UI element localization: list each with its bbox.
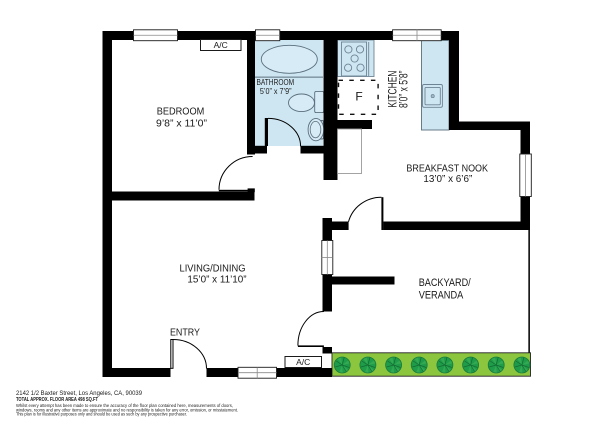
svg-text:A/C: A/C <box>296 357 310 367</box>
svg-text:LIVING/DINING: LIVING/DINING <box>180 264 246 275</box>
svg-text:15’0” x 11’10”: 15’0” x 11’10” <box>187 275 247 286</box>
svg-text:BACKYARD/: BACKYARD/ <box>419 277 472 289</box>
svg-text:VERANDA: VERANDA <box>419 290 464 302</box>
svg-text:BEDROOM: BEDROOM <box>157 106 205 118</box>
svg-text:5’0” x 7’9”: 5’0” x 7’9” <box>260 87 292 96</box>
svg-text:13’0” x 6’6”: 13’0” x 6’6” <box>423 174 472 185</box>
svg-text:8’0” x 5’8”: 8’0” x 5’8” <box>397 70 410 108</box>
svg-text:This plan is for illustrative: This plan is for illustrative purposes o… <box>16 412 187 417</box>
svg-text:F: F <box>355 90 362 104</box>
svg-text:BREAKFAST NOOK: BREAKFAST NOOK <box>406 163 488 174</box>
svg-text:2142 1/2 Baxter Street, Los An: 2142 1/2 Baxter Street, Los Angeles, CA,… <box>16 390 143 397</box>
svg-text:9’8” x 11’0”: 9’8” x 11’0” <box>156 117 207 129</box>
svg-text:ENTRY: ENTRY <box>170 328 200 339</box>
svg-text:BATHROOM: BATHROOM <box>256 78 294 87</box>
svg-text:A/C: A/C <box>214 40 228 50</box>
